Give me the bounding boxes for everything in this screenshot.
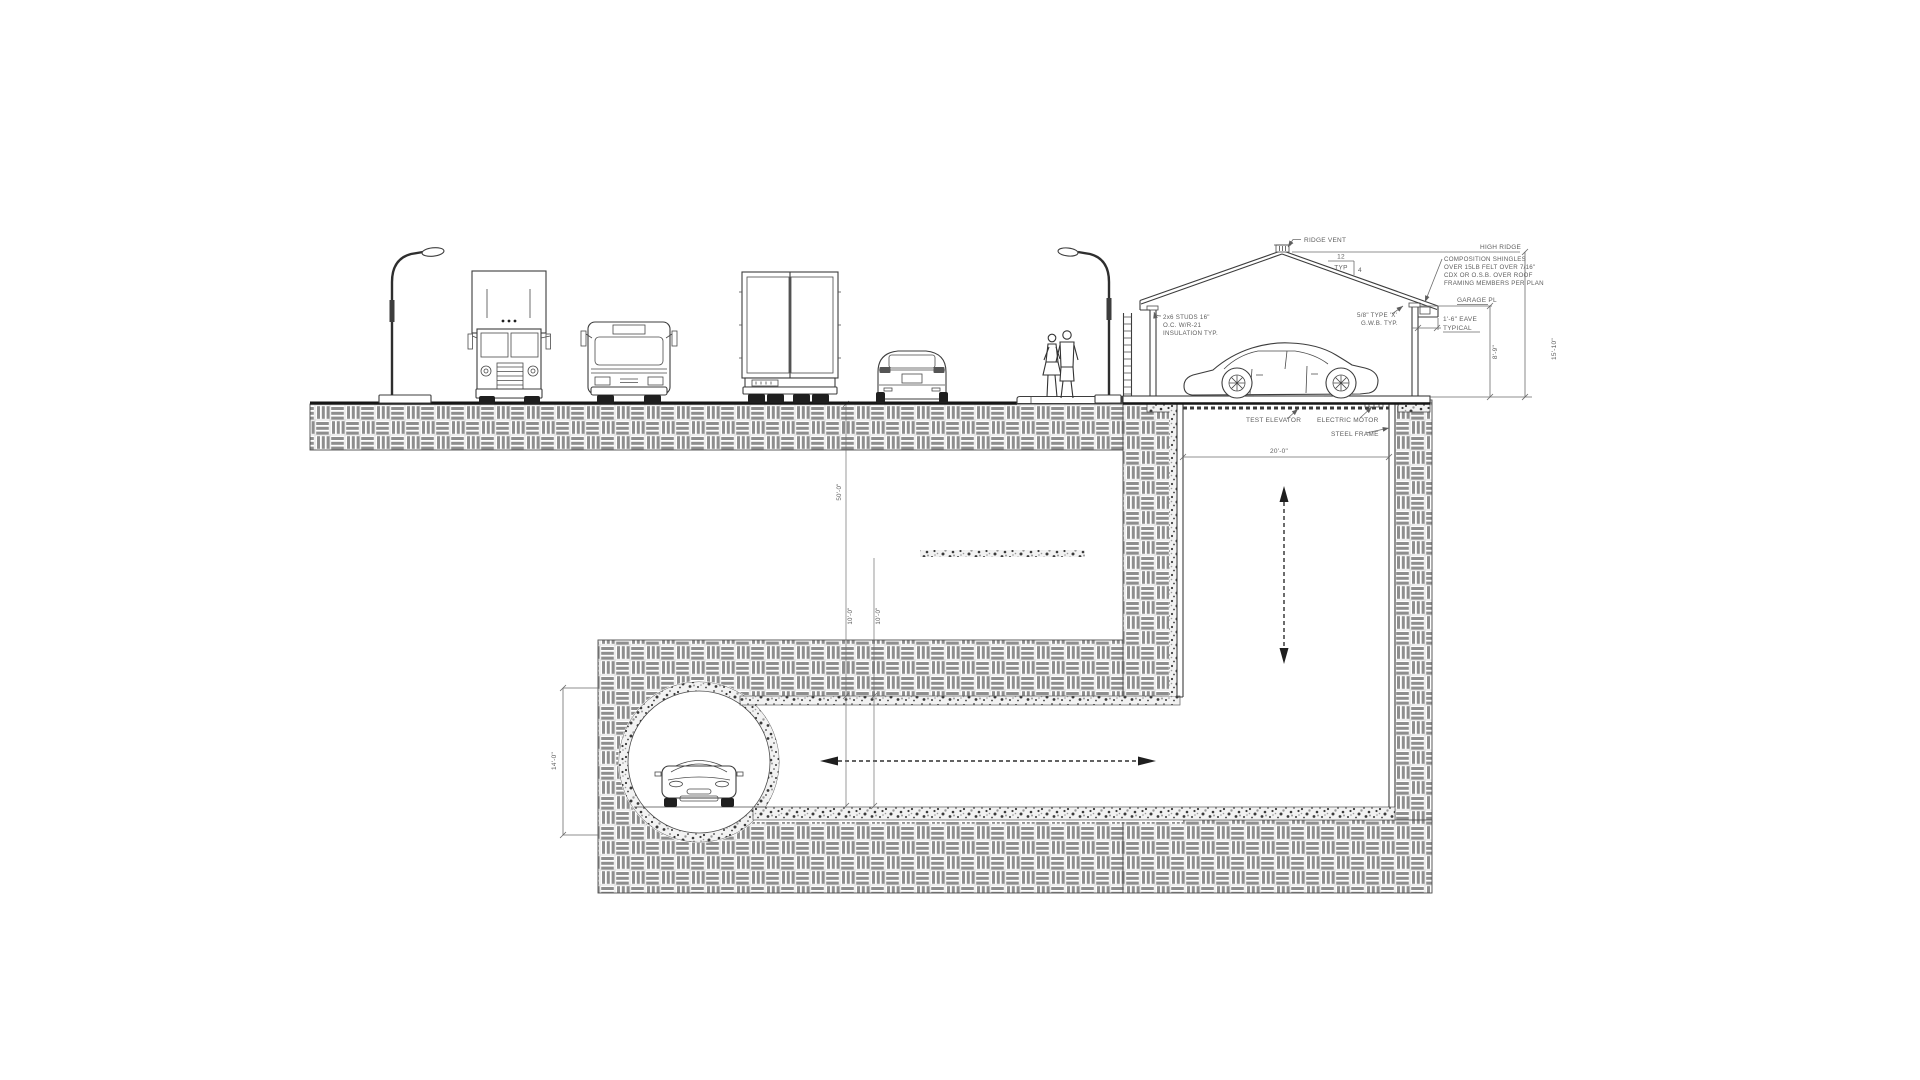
wheel-2 (767, 394, 784, 403)
taillight-left (880, 367, 891, 373)
plate-height-label: 8'-9" (1492, 344, 1499, 359)
pitch-run: 12 (1337, 254, 1345, 261)
wheel-right (644, 395, 661, 404)
garage: RIDGE VENT HIGH RIDGE 15'-10" COMPOSITIO… (1123, 237, 1558, 404)
headlight-right (716, 781, 729, 787)
headlight-left (481, 366, 491, 376)
tunnel-floor-gravel (753, 807, 1395, 820)
box-truck-rear (739, 272, 841, 403)
electric-motor-label: ELECTRIC MOTOR (1317, 417, 1379, 424)
garage-plate-label: GARAGE PL (1457, 297, 1497, 304)
lamp-pole (1078, 252, 1109, 395)
ridge-height-label: 15'-10" (1551, 338, 1558, 360)
windshield-left (481, 333, 508, 357)
wheel-left (597, 395, 614, 404)
street-lamp-left (379, 247, 444, 403)
tunnel-diameter-dim: 14'-0" (551, 685, 599, 838)
windshield-right (511, 333, 538, 357)
lamp-pole (392, 252, 423, 395)
garage-roof (1140, 245, 1438, 317)
comp-note-4: FRAMING MEMBERS PER PLAN (1444, 280, 1544, 287)
pedestrians (1043, 331, 1078, 398)
tunnel-diameter-label: 14'-0" (551, 752, 558, 771)
headlight-right (648, 377, 663, 385)
gwb-note-1: 5/8" TYPE 'X' (1357, 312, 1397, 319)
pitch-typ: TYP (1334, 265, 1347, 272)
trailer-box (472, 271, 546, 333)
street-level (310, 247, 1132, 405)
studs-note-1: 2x6 STUDS 16" (1163, 314, 1210, 321)
taillight-right (934, 367, 945, 373)
wheel-right (524, 396, 540, 404)
tunnel-crown-gravel (740, 696, 1180, 705)
mirror-left (581, 331, 586, 346)
test-elevator-label: TEST ELEVATOR (1246, 417, 1301, 424)
shaft-width-label: 20'-0" (1270, 448, 1289, 455)
shaft-labels: TEST ELEVATOR ELECTRIC MOTOR STEEL FRAME (1246, 407, 1389, 438)
license-plate (902, 374, 922, 383)
eave-return (1420, 307, 1430, 314)
comp-note-3: CDX OR O.S.B. OVER ROOF (1444, 272, 1533, 279)
wheel-right (939, 392, 948, 403)
comp-note-2: OVER 15LB FELT OVER 7/16" (1444, 264, 1535, 271)
windshield (595, 337, 663, 365)
drawing-canvas: 14'-0" 50'-0" 10'-0" 10'-0" 20'-0" (0, 0, 1920, 1080)
mirror-right (672, 331, 677, 346)
eave-note-1: 1'-6" EAVE (1443, 316, 1478, 323)
studs-note-2: O.C. W/R-21 (1163, 322, 1201, 329)
pedestrian-woman (1043, 334, 1061, 397)
headlight-left (670, 781, 683, 787)
bumper (743, 387, 837, 394)
garage-slab (1123, 396, 1430, 403)
access-ladder (1124, 313, 1132, 399)
headlight-left (595, 377, 610, 385)
lamp-head (1058, 247, 1079, 257)
rear-window (889, 355, 935, 368)
studs-note-3: INSULATION TYP. (1163, 330, 1218, 337)
gwb-note-2: G.W.B. TYP. (1361, 320, 1398, 327)
wheel-left (664, 798, 677, 807)
tunnel-depth-label: 50'-0" (836, 483, 843, 500)
lamp-head (422, 247, 445, 258)
shaft-right-wall-earth (1395, 400, 1432, 822)
high-ridge-label: HIGH RIDGE (1480, 244, 1522, 251)
shaft-right-wall-lines (1389, 400, 1395, 807)
bottom-earth-band (1123, 820, 1432, 893)
skirt (1043, 362, 1061, 375)
semi-truck-front (468, 271, 551, 404)
wheel-right (721, 798, 734, 807)
pedestrian-man (1056, 331, 1078, 398)
bumper (591, 387, 667, 395)
architectural-section-drawing: 14'-0" 50'-0" 10'-0" 10'-0" 20'-0" (0, 0, 1920, 1080)
comp-note-1: COMPOSITION SHINGLES (1444, 256, 1526, 263)
wheel-1 (748, 394, 765, 403)
street-earth-band (310, 404, 1123, 450)
eave-note-2: TYPICAL (1443, 325, 1472, 332)
shaft-width-dim: 20'-0" (1180, 448, 1392, 460)
shaft-left-wall-earth (1123, 400, 1175, 700)
garage-wall-right (1412, 306, 1418, 396)
pitch-rise: 4 (1358, 267, 1362, 274)
route-sign (613, 325, 645, 334)
bus-front (581, 322, 677, 404)
dim-small-1: 10'-0" (847, 607, 854, 624)
wheel-3 (793, 394, 810, 403)
elevator-shaft: 20'-0" TEST ELEVATOR ELECTRIC MOTOR STEE… (1180, 399, 1392, 664)
wheel-left (479, 396, 495, 404)
headlight-right (528, 366, 538, 376)
wheel-4 (812, 394, 829, 403)
ridge-vent-label: RIDGE VENT (1304, 237, 1346, 244)
shaft-wall-concrete (1169, 400, 1177, 696)
sedan-rear (876, 351, 948, 403)
garage-wall-left (1150, 309, 1156, 396)
garage-car-side (1184, 343, 1378, 398)
soil-break-strip (920, 550, 1085, 557)
shaft-left-wall-lines (1177, 400, 1183, 697)
earth-hatch (310, 396, 1432, 893)
elevator-travel-arrow (1280, 486, 1289, 664)
dim-small-2: 10'-0" (875, 607, 882, 624)
wheel-left (876, 392, 885, 403)
mirror-left (468, 334, 473, 349)
